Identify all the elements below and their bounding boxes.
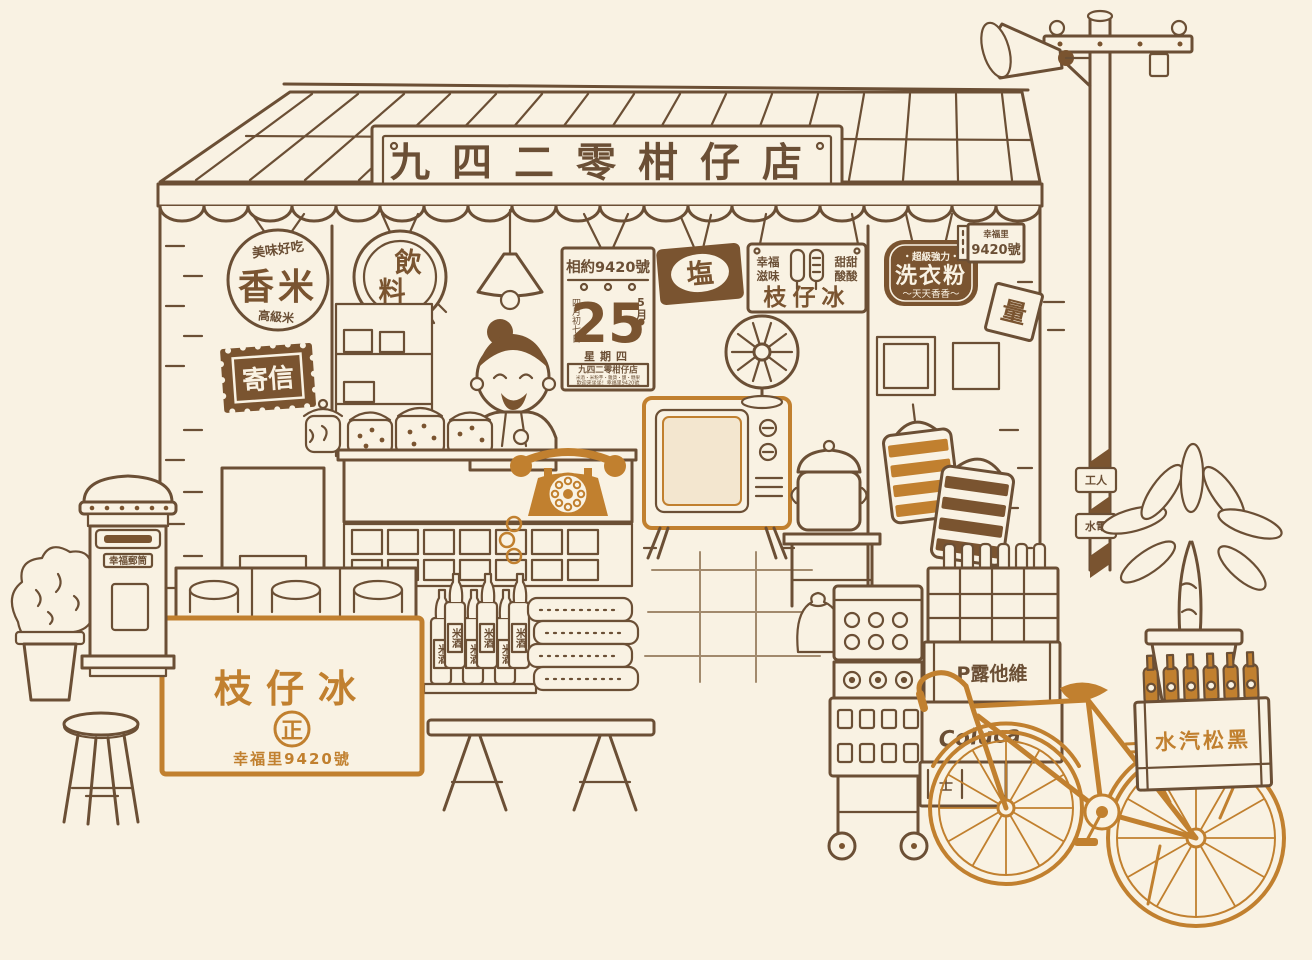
popsicle-right1: 甜甜 xyxy=(835,255,858,269)
rice-sign: 美味好吃 香米 高級米 xyxy=(228,214,328,330)
popsicle-sign: 幸福 滋味 甜甜 酸酸 枝仔冰 xyxy=(748,214,866,312)
postbox-label: 幸福郵筒 xyxy=(109,555,148,567)
drink-sign-char1: 飲 xyxy=(394,247,423,279)
bench xyxy=(428,720,654,810)
wine-bottle: 米酒 xyxy=(477,574,497,668)
wine-bottle: 米酒 xyxy=(509,574,529,668)
wine-bottle: 米酒 xyxy=(445,574,465,668)
mail-sign: 寄信 xyxy=(217,340,320,417)
calendar: 相約9420號 四月初七日 5月 25 星期四 九四二零柑仔店 米酒・米粉芋・雜… xyxy=(562,214,654,390)
left-plant xyxy=(12,547,100,700)
scene-canvas: 九四二零柑仔店 寄信 美味好吃 xyxy=(0,0,1312,960)
floor-tiles xyxy=(645,552,820,682)
detergent-title: 洗衣粉 xyxy=(895,263,967,289)
main-sign-text: 九四二零柑仔店 xyxy=(390,140,824,186)
crate-label-top: P露他維 xyxy=(957,662,1028,685)
awning xyxy=(158,184,1042,221)
address-district: 幸福里 xyxy=(983,229,1009,240)
rice-cooker xyxy=(792,441,867,530)
rice-sign-title: 香米 xyxy=(238,267,318,308)
freezer-title: 枝仔冰 xyxy=(214,667,370,711)
bottle-label: 米酒 xyxy=(482,627,494,649)
electric-fan xyxy=(726,316,798,408)
pendant-lamp xyxy=(478,210,542,309)
bike-crate-label: 水汽松黑 xyxy=(1155,727,1252,754)
address-plate: 幸福里 9420號 xyxy=(958,224,1024,262)
detergent-bottom: ～天天香香～ xyxy=(902,289,960,300)
glass-jar xyxy=(348,413,392,453)
glass-jar xyxy=(448,413,492,453)
popsicle-left2: 滋味 xyxy=(757,269,780,283)
popsicle-freezer: 枝仔冰 正 幸福里9420號 xyxy=(162,618,422,774)
calendar-weekday: 星期四 xyxy=(584,349,632,363)
illustration-grocery-store-scene: 九四二零柑仔店 寄信 美味好吃 xyxy=(0,0,1312,960)
bottle-label: 米酒 xyxy=(514,627,526,649)
wine-bottle-shelf: 米酒 米酒 米酒 米酒 米酒 xyxy=(424,574,536,693)
television xyxy=(644,398,794,558)
stool xyxy=(64,713,138,824)
salt-sign: 塩 xyxy=(653,213,744,306)
calendar-header: 相約9420號 xyxy=(566,258,650,276)
freezer-address: 幸福里9420號 xyxy=(233,750,351,768)
popsicle-title: 枝仔冰 xyxy=(764,284,851,311)
calendar-welcome: 歡迎來坐坐！幸福里9420號 xyxy=(577,380,640,387)
postbox: 幸福郵筒 xyxy=(80,476,176,676)
pole-plate-top: 工人 xyxy=(1085,473,1108,487)
freezer-seal: 正 xyxy=(281,719,303,744)
salt-sign-text: 塩 xyxy=(685,258,715,291)
mail-sign-text: 寄信 xyxy=(241,362,295,397)
calendar-date: 25 xyxy=(570,292,645,355)
address-number: 9420號 xyxy=(971,242,1020,258)
freezer-display-top xyxy=(176,568,416,620)
popsicle-right2: 酸酸 xyxy=(835,269,858,283)
bottle-label: 米酒 xyxy=(450,627,462,649)
steamer-stack xyxy=(528,598,638,690)
diamond-sign: 量 xyxy=(985,283,1043,341)
calendar-shop: 九四二零柑仔店 xyxy=(577,365,638,376)
popsicle-left1: 幸福 xyxy=(757,255,780,269)
detergent-top: ・超級強力・ xyxy=(902,251,959,263)
glass-jar xyxy=(396,408,444,452)
